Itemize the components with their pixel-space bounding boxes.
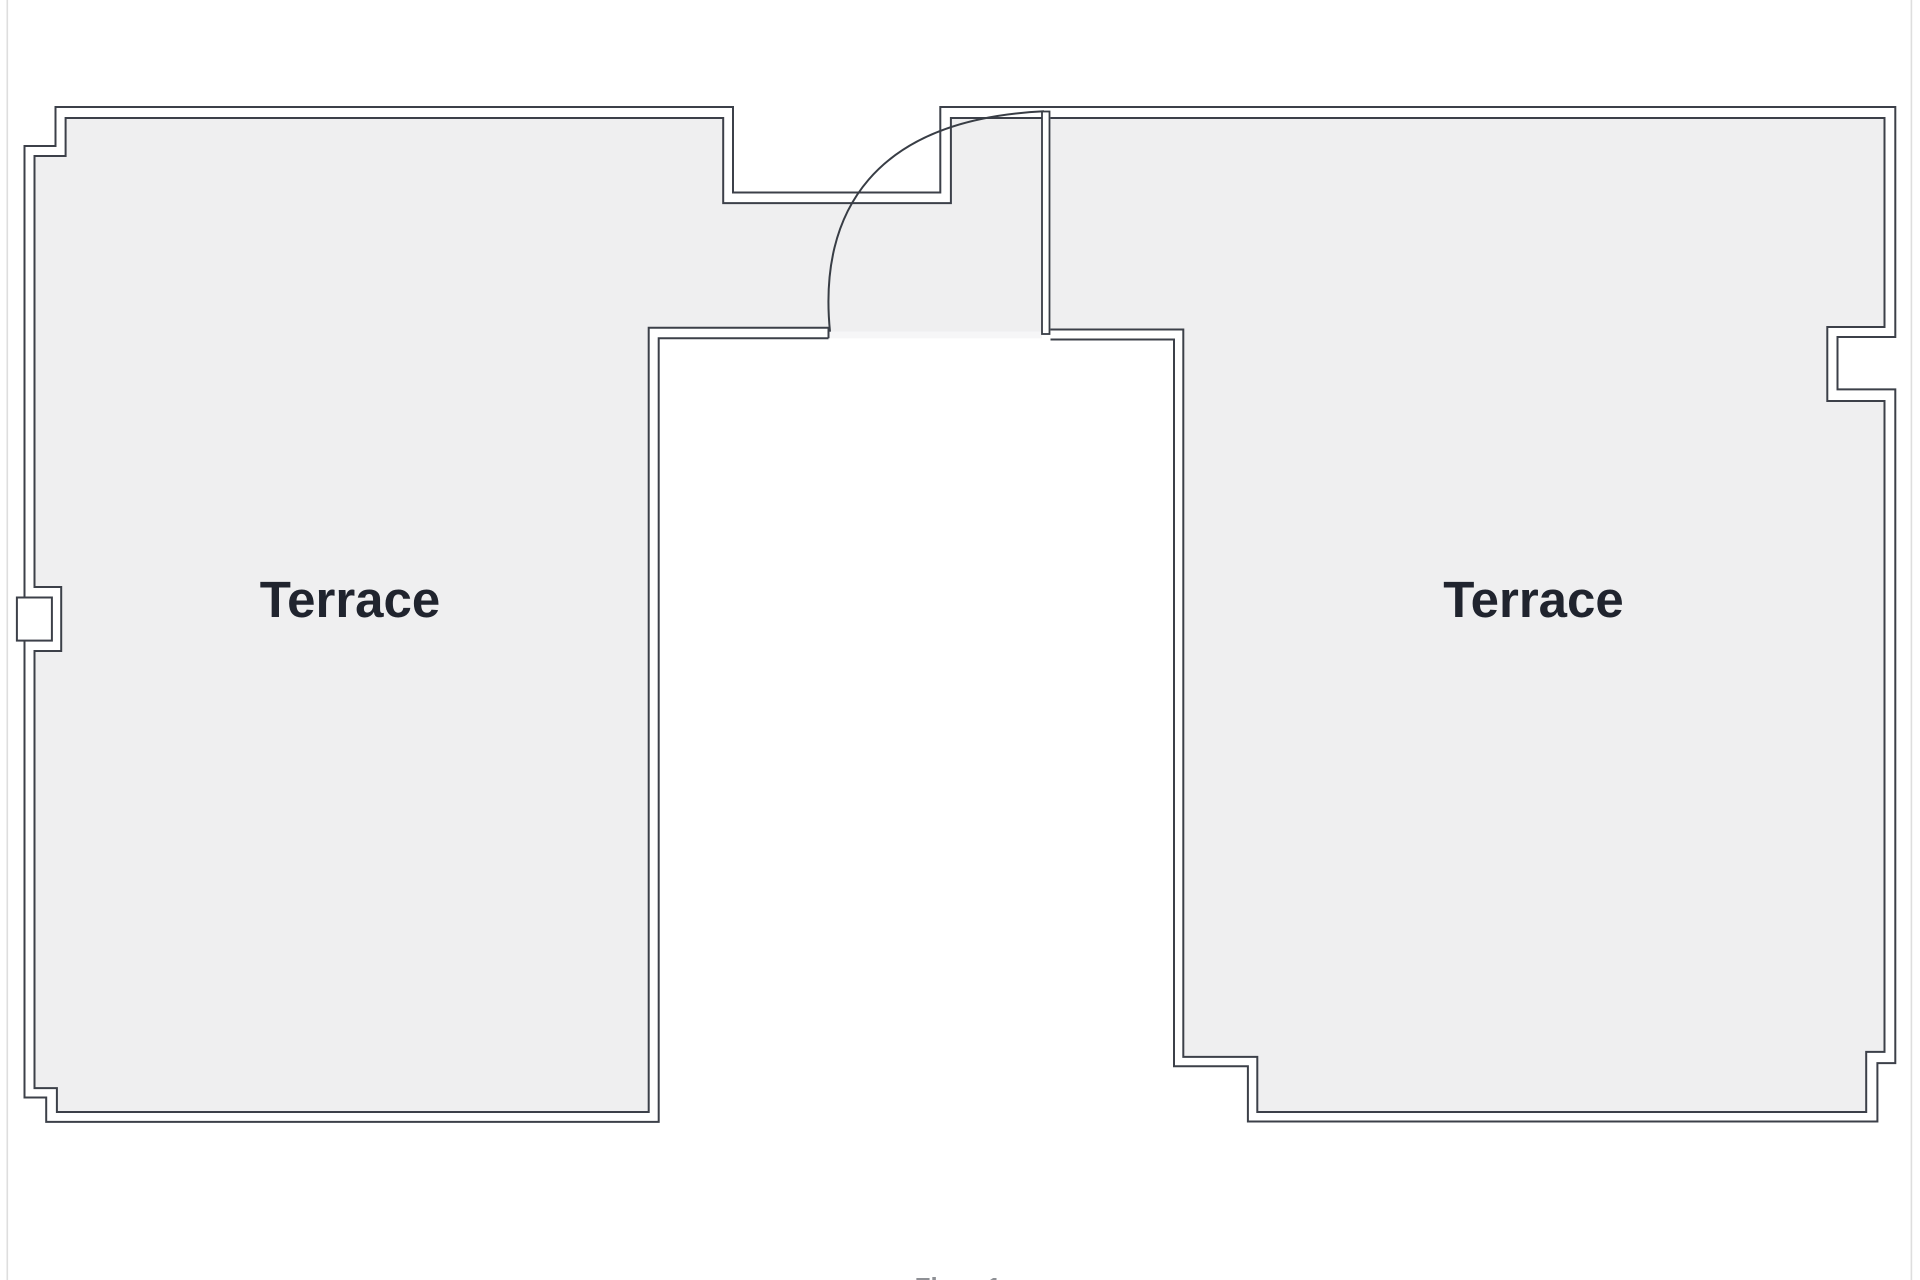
svg-text:Floor 1: Floor 1 — [915, 1272, 1002, 1280]
svg-text:Terrace: Terrace — [260, 571, 441, 628]
svg-text:Terrace: Terrace — [1443, 571, 1624, 628]
